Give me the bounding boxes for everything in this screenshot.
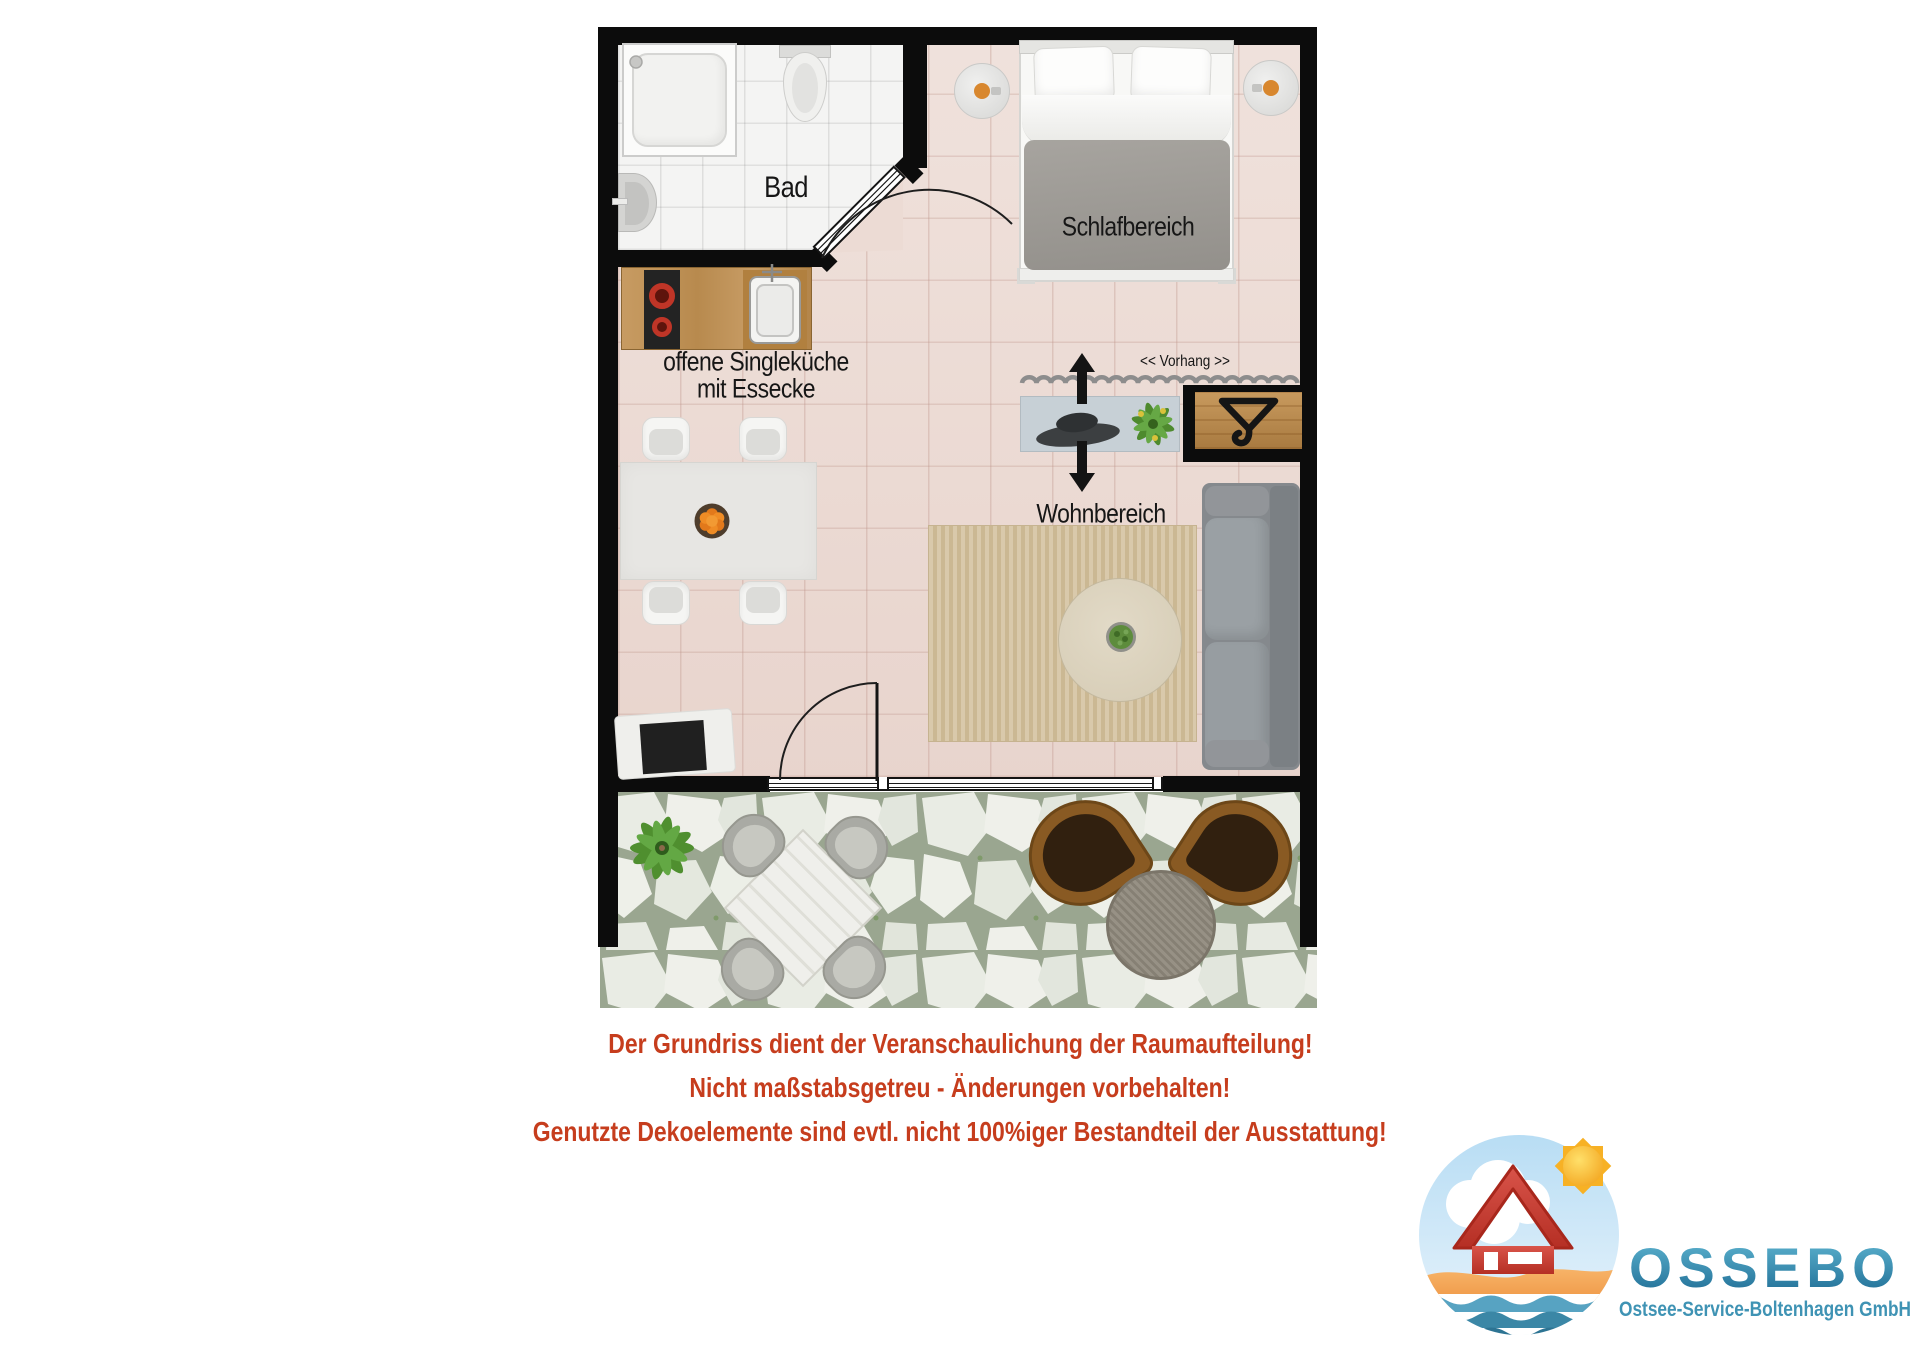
sofa-backrest: [1270, 486, 1298, 767]
label-curtain: << Vorhang >>: [1140, 353, 1230, 371]
wall-bath-right: [903, 45, 927, 168]
logo-name: OSSEBO: [1629, 1236, 1901, 1299]
label-bath: Bad: [764, 171, 808, 205]
dining-chair: [642, 581, 690, 625]
label-sleep-area: Schlafbereich: [1062, 212, 1194, 243]
disclaimer-line-1: Der Grundriss dient der Veranschaulichun…: [0, 1022, 1920, 1066]
dining-chair: [739, 417, 787, 461]
wardrobe: [1195, 392, 1302, 449]
bedside-lamp: [954, 63, 1010, 119]
floor-plan-page: Bad Schlafbereich offene Singleküche mit…: [0, 0, 1920, 1358]
bedside-lamp: [1243, 60, 1299, 116]
dining-chair: [642, 417, 690, 461]
logo-subtitle: Ostsee-Service-Boltenhagen GmbH: [1619, 1298, 1911, 1321]
wall-bottom-right: [1163, 776, 1317, 792]
duvet: [1024, 140, 1230, 270]
kitchen-counter: [621, 267, 812, 350]
cooktop: [644, 270, 680, 349]
terrace-window: [767, 777, 1163, 791]
terrace-side-table: [1106, 870, 1216, 980]
tv-stand: [614, 708, 736, 780]
wall-right: [1300, 27, 1317, 947]
shower: [622, 43, 737, 157]
window-divider: [877, 777, 889, 789]
label-kitchen-line2: mit Essecke: [697, 374, 815, 405]
dining-table: [620, 462, 817, 580]
company-logo: OSSEBO Ostsee-Service-Boltenhagen GmbH: [1402, 1126, 1920, 1358]
wall-left: [598, 27, 618, 947]
tv: [640, 720, 707, 774]
label-living-area: Wohnbereich: [1036, 499, 1165, 530]
sofa-armrest: [1205, 740, 1269, 767]
kitchen-sink-unit: [743, 270, 807, 349]
window-divider: [1152, 777, 1163, 789]
dining-chair: [739, 581, 787, 625]
sofa: [1202, 483, 1300, 770]
wall-bath-bottom: [598, 250, 823, 267]
sofa-armrest: [1205, 486, 1269, 516]
sun-icon: [1555, 1138, 1612, 1195]
sofa-cushion: [1205, 518, 1269, 640]
disclaimer-line-2: Nicht maßstabsgetreu - Änderungen vorbeh…: [0, 1066, 1920, 1110]
bath-faucet: [612, 198, 628, 205]
coffee-table: [1058, 578, 1182, 702]
